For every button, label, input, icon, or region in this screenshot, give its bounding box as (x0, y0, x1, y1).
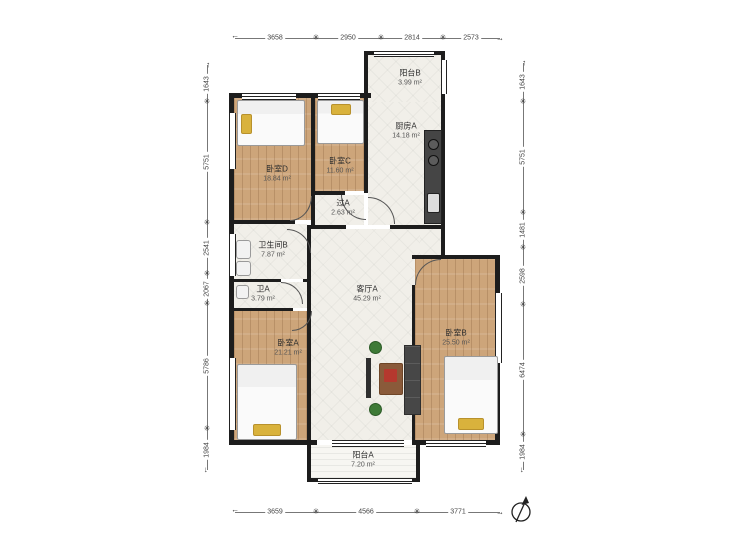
dim-label: 2573 (461, 35, 481, 42)
room-label-balcony-a: 阳台A 7.20 m² (351, 450, 375, 469)
room-area: 7.87 m² (258, 251, 287, 260)
dim-arrow-icon: → (519, 466, 528, 474)
bed (237, 100, 305, 146)
sofa (404, 345, 421, 415)
window (242, 93, 296, 100)
wall (364, 51, 368, 102)
room-label-bedroom-b: 卧室B 25.50 m² (442, 328, 470, 347)
wall (390, 225, 443, 229)
room-label-bathroom-a: 卫A 3.79 m² (251, 284, 275, 303)
room-label-bedroom-d: 卧室D 18.84 m² (263, 164, 291, 183)
window (229, 113, 236, 169)
stove-burner-icon (428, 139, 439, 150)
dim-arrow-icon: → (231, 508, 239, 517)
room-name: 卫A (251, 284, 275, 294)
room-name: 卧室C (326, 156, 353, 166)
room-area: 18.84 m² (263, 175, 291, 184)
stove-burner-icon (428, 155, 439, 166)
dim-tick-icon: ✳ (520, 300, 527, 309)
wall (229, 220, 295, 224)
pillow (331, 104, 351, 115)
dim-tick-icon: ✳ (313, 507, 320, 516)
room-name: 卧室D (263, 164, 291, 174)
wall (229, 308, 293, 311)
dim-label: 2950 (338, 35, 358, 42)
dim-arrow-icon: → (496, 508, 504, 517)
dim-label: 1984 (204, 440, 211, 460)
wall (311, 95, 315, 225)
dim-label: 5751 (204, 152, 211, 172)
dim-tick-icon: ✳ (440, 33, 447, 42)
room-living-a-ext (420, 229, 441, 255)
room-label-bedroom-a: 卧室A 21.21 m² (274, 338, 302, 357)
window (441, 60, 447, 94)
dim-label: 2598 (520, 266, 527, 286)
dim-tick-icon: ✳ (520, 243, 527, 252)
room-name: 卫生间B (258, 240, 287, 250)
dim-arrow-icon: → (203, 61, 212, 69)
room-area: 21.21 m² (274, 349, 302, 358)
room-label-bathroom-b: 卫生间B 7.87 m² (258, 240, 287, 259)
dim-tick-icon: ✳ (378, 33, 385, 42)
dim-label: 6474 (520, 360, 527, 380)
window (374, 51, 434, 57)
dim-tick-icon: ✳ (520, 430, 527, 439)
wall (229, 440, 317, 445)
window (229, 358, 236, 430)
room-name: 阳台A (351, 450, 375, 460)
dim-tick-icon: ✳ (204, 97, 211, 106)
bed (237, 364, 297, 440)
plant-icon (369, 403, 382, 416)
wall (416, 443, 420, 482)
dim-tick-icon: ✳ (520, 208, 527, 217)
wall (412, 255, 499, 259)
room-area: 14.18 m² (392, 132, 420, 141)
room-name: 厨房A (392, 121, 420, 131)
dim-label: 1643 (520, 72, 527, 92)
dim-tick-icon: ✳ (204, 269, 211, 278)
dim-tick-icon: ✳ (414, 507, 421, 516)
dim-label: 1984 (520, 442, 527, 462)
room-area: 3.79 m² (251, 295, 275, 304)
dim-arrow-icon: → (496, 34, 504, 43)
room-label-balcony-b: 阳台B 3.99 m² (398, 68, 422, 87)
room-label-bedroom-c: 卧室C 11.60 m² (326, 156, 353, 175)
room-label-kitchen-a: 厨房A 14.18 m² (392, 121, 420, 140)
window (318, 478, 412, 484)
room-area: 11.60 m² (326, 167, 353, 176)
room-label-living-a: 客厅A 45.29 m² (353, 284, 381, 303)
dim-arrow-icon: → (203, 466, 212, 474)
room-name: 阳台B (398, 68, 422, 78)
floor-plan-canvas: 阳台B 3.99 m² 厨房A 14.18 m² 卧室D 18.84 m² 卧室… (0, 0, 729, 547)
dim-label: 1643 (204, 74, 211, 94)
bed (444, 356, 498, 434)
window (229, 234, 236, 276)
room-name: 卧室B (442, 328, 470, 338)
pillow (458, 418, 484, 430)
dim-label: 2541 (204, 238, 211, 258)
dim-tick-icon: ✳ (520, 97, 527, 106)
dim-arrow-icon: → (231, 34, 239, 43)
pillow (241, 114, 252, 134)
dim-label: 3771 (448, 509, 468, 516)
sink-icon (427, 193, 440, 213)
wall (303, 279, 311, 282)
pillow (253, 424, 281, 436)
table-decor (384, 369, 397, 382)
dim-label: 2814 (402, 35, 422, 42)
compass-icon (504, 492, 540, 528)
dim-label: 3658 (265, 35, 285, 42)
dim-label: 2067 (204, 279, 211, 299)
dim-label: 5786 (204, 356, 211, 376)
room-area: 2.63 m² (331, 209, 355, 218)
window (426, 440, 486, 447)
room-area: 45.29 m² (353, 295, 381, 304)
coffee-table (379, 363, 403, 395)
window (332, 440, 404, 447)
room-name: 客厅A (353, 284, 381, 294)
room-area: 25.50 m² (442, 339, 470, 348)
wall (364, 102, 368, 193)
dim-label: 5751 (520, 147, 527, 167)
wall (307, 443, 311, 482)
tv-icon (366, 358, 371, 398)
window (495, 293, 502, 363)
wall (229, 279, 281, 282)
dim-label: 1481 (520, 220, 527, 240)
dim-tick-icon: ✳ (204, 218, 211, 227)
room-name: 过A (331, 198, 355, 208)
wall (307, 225, 311, 443)
wall (311, 225, 346, 229)
toilet-icon (236, 240, 251, 259)
room-name: 卧室A (274, 338, 302, 348)
sink-icon (236, 261, 251, 276)
bed (317, 100, 364, 144)
room-label-hall-a: 过A 2.63 m² (331, 198, 355, 217)
toilet-icon (236, 285, 249, 299)
dim-label: 3659 (265, 509, 285, 516)
kitchen-counter (424, 130, 442, 224)
dim-tick-icon: ✳ (313, 33, 320, 42)
dim-arrow-icon: → (519, 59, 528, 67)
dim-label: 4566 (356, 509, 376, 516)
wall (311, 191, 345, 195)
dim-tick-icon: ✳ (204, 299, 211, 308)
window (318, 93, 360, 100)
room-area: 3.99 m² (398, 79, 422, 88)
room-area: 7.20 m² (351, 461, 375, 470)
dim-tick-icon: ✳ (204, 424, 211, 433)
plant-icon (369, 341, 382, 354)
